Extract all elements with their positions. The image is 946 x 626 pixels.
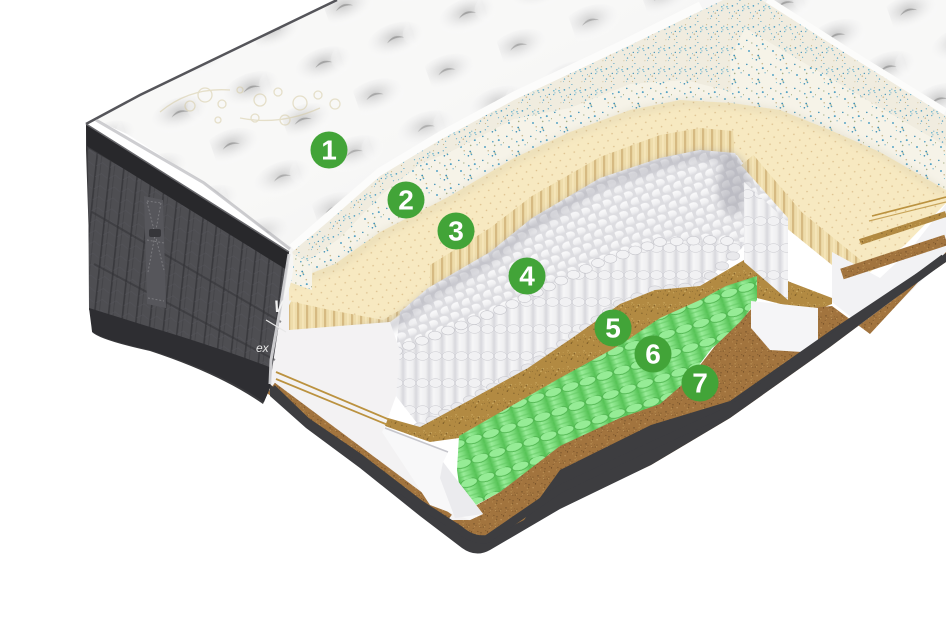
svg-text:2: 2 [398, 185, 414, 216]
svg-text:7: 7 [692, 368, 708, 399]
svg-text:W: W [274, 297, 292, 316]
svg-text:3: 3 [448, 216, 464, 247]
svg-text:1: 1 [321, 135, 337, 166]
svg-text:6: 6 [645, 339, 661, 370]
svg-text:ex: ex [256, 341, 270, 355]
svg-text:4: 4 [519, 261, 535, 292]
svg-text:5: 5 [605, 313, 621, 344]
